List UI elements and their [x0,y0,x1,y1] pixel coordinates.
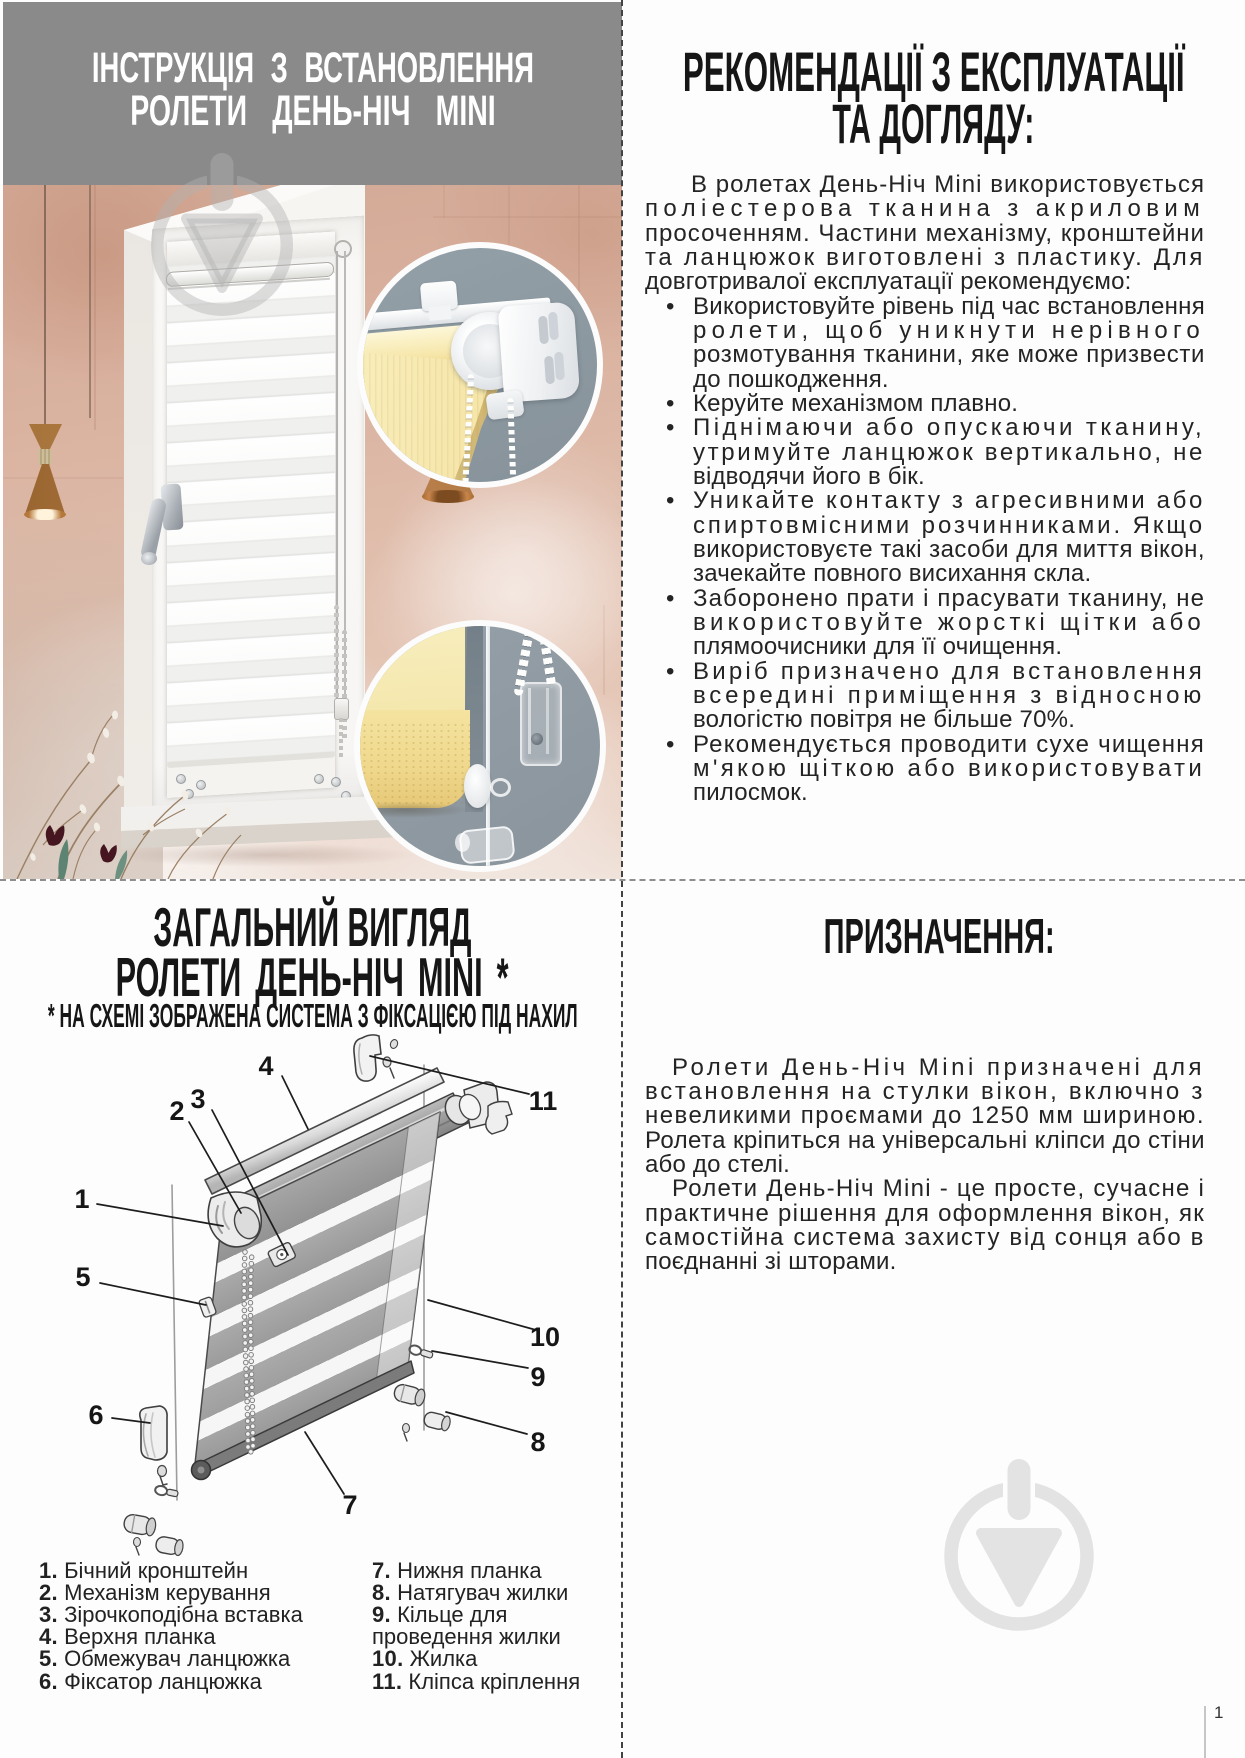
svg-text:4: 4 [258,1051,273,1081]
svg-text:7: 7 [342,1490,357,1520]
svg-text:10: 10 [530,1322,560,1352]
svg-text:2: 2 [169,1096,184,1126]
svg-text:8: 8 [530,1427,545,1457]
svg-text:3: 3 [190,1084,205,1114]
svg-text:5: 5 [75,1262,90,1292]
svg-text:1: 1 [74,1184,89,1214]
svg-text:9: 9 [530,1362,545,1392]
svg-text:6: 6 [88,1400,103,1430]
svg-text:11: 11 [529,1086,558,1116]
